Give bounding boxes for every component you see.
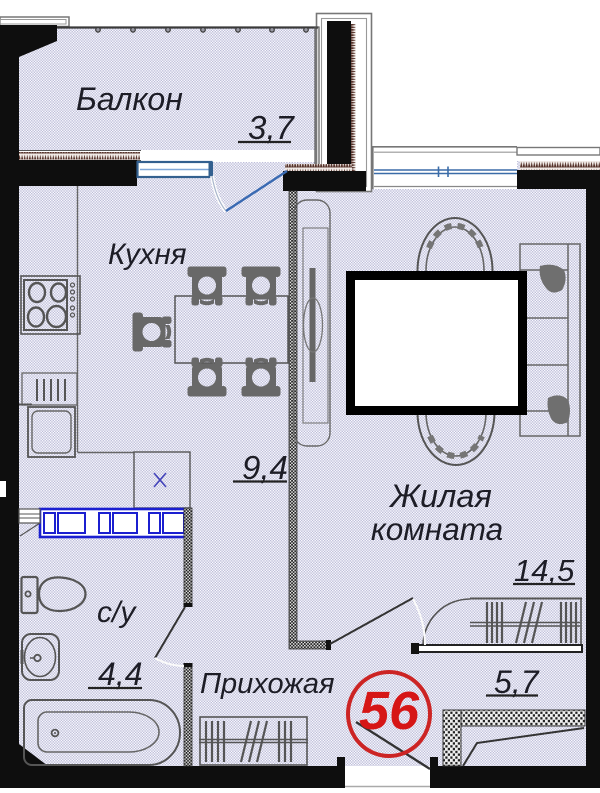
svg-text:комната: комната bbox=[371, 511, 503, 547]
svg-text:4,4: 4,4 bbox=[98, 656, 142, 692]
svg-text:Прихожая: Прихожая bbox=[200, 668, 335, 700]
svg-text:Жилая: Жилая bbox=[388, 478, 492, 514]
svg-text:56: 56 bbox=[359, 681, 420, 741]
svg-text:Балкон: Балкон bbox=[76, 81, 183, 117]
svg-text:3,7: 3,7 bbox=[248, 109, 296, 146]
svg-text:с/у: с/у bbox=[97, 596, 137, 629]
svg-text:Кухня: Кухня bbox=[108, 238, 187, 271]
svg-text:14,5: 14,5 bbox=[514, 553, 575, 588]
